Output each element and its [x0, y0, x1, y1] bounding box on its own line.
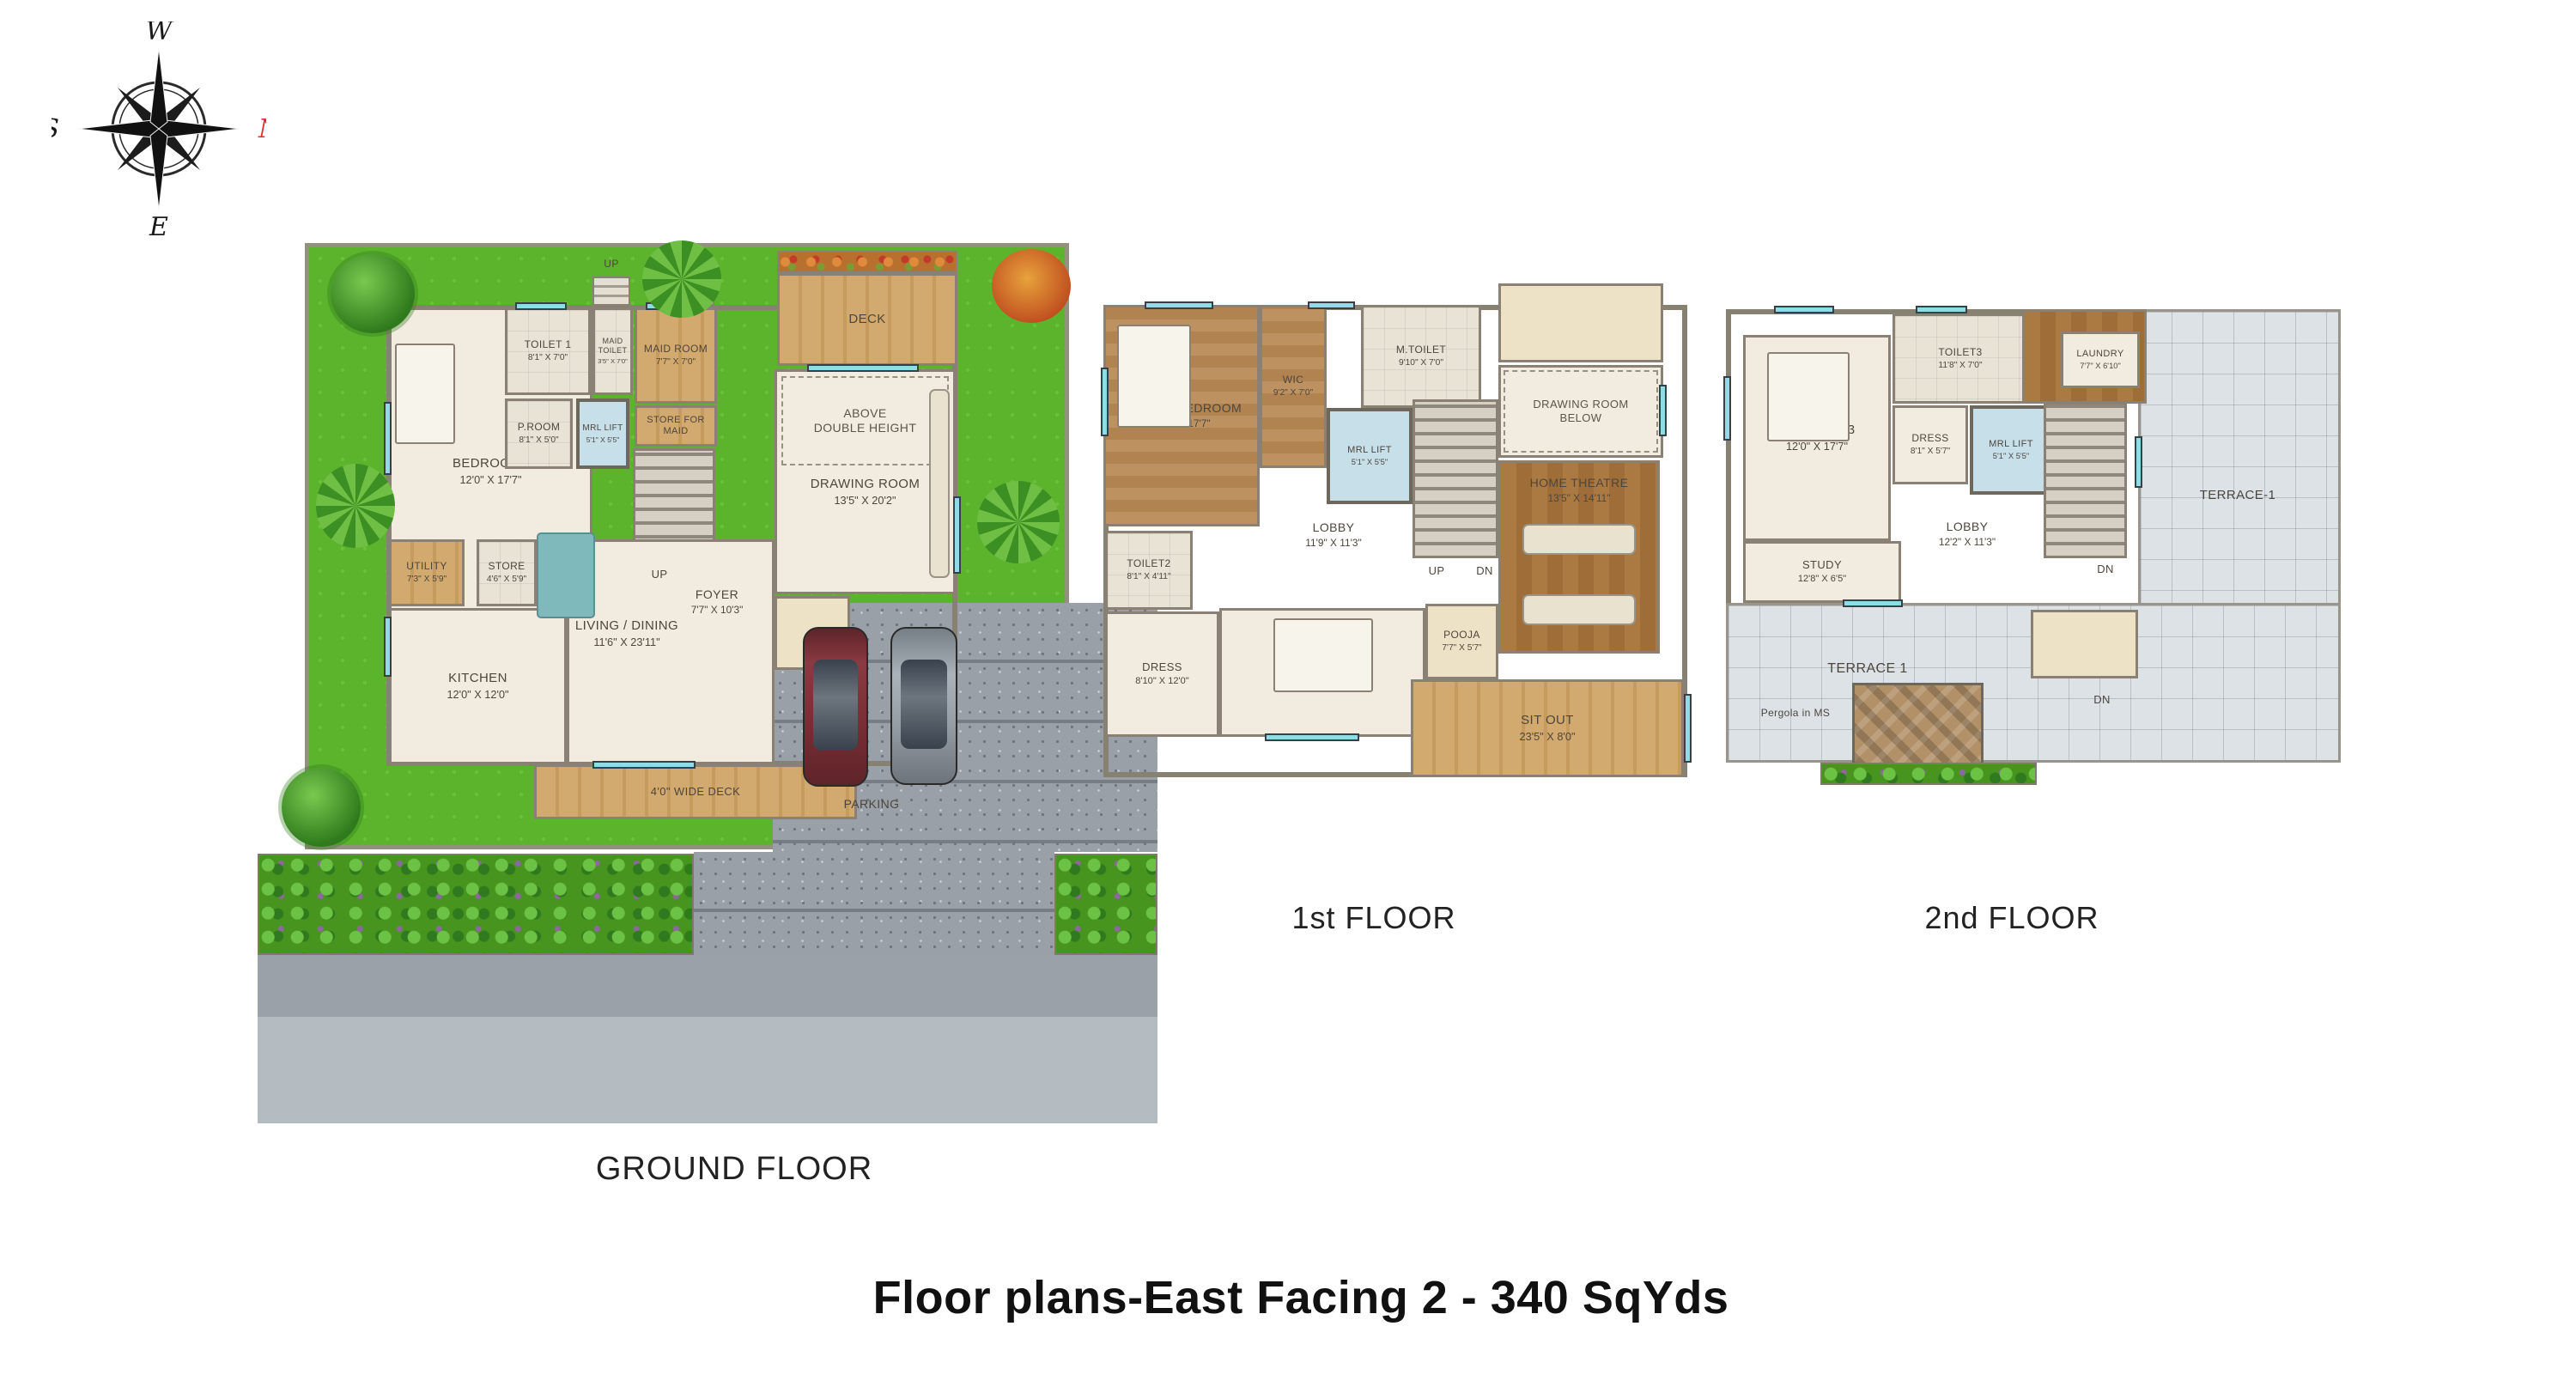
- mrl-lift-dimension: 5'1" X 5'5": [1993, 452, 2029, 461]
- window: [1265, 733, 1359, 741]
- above-double-height: ABOVE DOUBLE HEIGHT: [781, 376, 949, 465]
- wic-dimension: 9'2" X 7'0": [1273, 388, 1313, 398]
- store-for-maid: STORE FOR MAID: [635, 405, 717, 447]
- stairs-dn-label-label: DN: [1476, 564, 1493, 578]
- theatre-sofa: [1522, 594, 1636, 625]
- palm-tree: [977, 481, 1060, 563]
- toilet2-label: TOILET2: [1127, 557, 1170, 570]
- sit-out: SIT OUT23'5" X 8'0": [1411, 679, 1684, 777]
- window: [2135, 436, 2142, 488]
- first-floor-caption: 1st FLOOR: [1245, 900, 1503, 936]
- sheet-title: Floor plans-East Facing 2 - 340 SqYds: [773, 1271, 1829, 1324]
- landing: [2031, 610, 2138, 678]
- lobby-label: LOBBY12'2" X 11'3": [1907, 514, 2027, 555]
- maid-toilet-label: MAID TOILET: [595, 337, 630, 356]
- mrl-lift-label: MRL LIFT: [1989, 439, 2033, 450]
- home-theatre-label-label: HOME THEATRE: [1530, 476, 1629, 490]
- mrl-lift-label: MRL LIFT: [582, 423, 623, 434]
- maid-room-dimension: 7'7" X 7'0": [656, 357, 696, 368]
- balcony-seating: [1498, 283, 1663, 362]
- p-room-dimension: 8'1" X 5'0": [519, 435, 558, 446]
- deck-planter: [777, 251, 957, 273]
- road: [258, 955, 1157, 1123]
- m-toilet-label: M.TOILET: [1396, 344, 1446, 356]
- dress: DRESS8'10" X 12'0": [1105, 611, 1219, 737]
- toilet3: TOILET311'8" X 7'0": [1893, 313, 2028, 404]
- drawing-room-below-label-label: DRAWING ROOM BELOW: [1533, 398, 1628, 425]
- terrace1-label: TERRACE 1: [1803, 660, 1932, 678]
- window: [1308, 301, 1355, 309]
- palm-tree: [642, 240, 721, 318]
- tree: [331, 254, 415, 333]
- dress: DRESS8'1" X 5'7": [1893, 405, 1968, 484]
- stairs-dn-label-label: DN: [2097, 563, 2114, 576]
- kitchen: KITCHEN12'0" X 12'0": [389, 608, 567, 764]
- toilet2: TOILET28'1" X 4'11": [1105, 531, 1193, 610]
- hedge-right: [1054, 854, 1157, 955]
- laundry-dimension: 7'7" X 6'10": [2080, 362, 2121, 371]
- toilet3-dimension: 11'8" X 7'0": [1938, 361, 1982, 371]
- toilet1-dimension: 8'1" X 7'0": [528, 353, 568, 363]
- pergola: [1852, 683, 1984, 765]
- window: [1723, 376, 1731, 441]
- toilet1: TOILET 18'1" X 7'0": [505, 307, 591, 395]
- p-room: P.ROOM8'1" X 5'0": [505, 398, 573, 469]
- foyer-label-dimension: 7'7" X 10'3": [691, 604, 744, 617]
- drawing-room-label-dimension: 13'5" X 20'2": [834, 494, 896, 508]
- side-steps-1-label: UP: [594, 256, 629, 271]
- study-label: STUDY: [1802, 558, 1842, 572]
- second-floor-plan: BEDROOM312'0" X 17'7"TOILET311'8" X 7'0"…: [1722, 282, 2358, 797]
- compass-south-label: S: [52, 114, 59, 144]
- bedroom1-dimension: 12'0" X 17'7": [459, 473, 521, 487]
- store-for-maid-label: STORE FOR MAID: [637, 415, 714, 438]
- toilet1-label: TOILET 1: [525, 338, 572, 351]
- window: [592, 761, 696, 769]
- car-red: [803, 627, 868, 787]
- living-dining-label-dimension: 11'6" X 23'11": [593, 636, 659, 649]
- window: [384, 617, 392, 677]
- bedroom3-dimension: 12'0" X 17'7": [1786, 440, 1848, 453]
- stairs-up-label: UP: [642, 567, 677, 582]
- parking-label-label: PARKING: [844, 797, 900, 812]
- second-floor-caption: 2nd FLOOR: [1883, 900, 2141, 936]
- bedroom2-bed: [1273, 618, 1373, 692]
- home-theatre-label: HOME THEATRE13'5" X 14'11": [1505, 471, 1653, 510]
- mrl-lift-dimension: 5'1" X 5'5": [586, 435, 620, 444]
- toilet3-label: TOILET3: [1938, 346, 1982, 359]
- foyer-label-label: FOYER: [696, 587, 738, 602]
- mrl-lift: MRL LIFT5'1" X 5'5": [576, 398, 629, 469]
- window: [953, 496, 961, 574]
- pooja-dimension: 7'7" X 5'7": [1442, 643, 1481, 654]
- terrace-1-label-label: TERRACE-1: [2200, 488, 2276, 503]
- window: [1684, 694, 1692, 763]
- bedroom3-bed: [1767, 352, 1850, 441]
- terrace-dn-label: DN: [2087, 692, 2117, 708]
- sit-out-label: SIT OUT: [1521, 713, 1574, 728]
- store-dimension: 4'6" X 5'9": [487, 575, 526, 585]
- mrl-lift: MRL LIFT5'1" X 5'5": [1970, 405, 2052, 495]
- bedroom1-bed: [395, 344, 455, 444]
- stairs-up-label-label: UP: [652, 568, 668, 581]
- terrace-dn-label-label: DN: [2093, 693, 2111, 707]
- wic-label: WIC: [1283, 374, 1304, 386]
- stairs-dn-label: DN: [1469, 563, 1500, 579]
- mrl-lift: MRL LIFT5'1" X 5'5": [1327, 408, 1413, 504]
- window: [1659, 385, 1667, 436]
- maid-room-label: MAID ROOM: [644, 343, 708, 356]
- ground-floor-caption: GROUND FLOOR: [562, 1151, 906, 1188]
- sit-out-dimension: 23'5" X 8'0": [1520, 730, 1576, 744]
- terrace-1-label: TERRACE-1: [2169, 486, 2306, 505]
- driveway-entry: [694, 852, 1054, 957]
- window: [1916, 306, 1967, 313]
- lobby-label-label: LOBBY: [1947, 520, 1989, 534]
- side-steps-1: [592, 277, 630, 306]
- pergola-label: Pergola in MS: [1748, 704, 1843, 721]
- pergola-label-label: Pergola in MS: [1761, 707, 1831, 720]
- stairs-up-label-label: UP: [1429, 564, 1445, 578]
- car-grey: [890, 627, 957, 785]
- pooja-label: POOJA: [1443, 629, 1480, 642]
- above-double-height-label: ABOVE DOUBLE HEIGHT: [814, 406, 917, 435]
- study: STUDY12'8" X 6'5": [1743, 541, 1901, 603]
- maid-toilet-dimension: 3'5" X 7'0": [598, 357, 628, 365]
- window: [1843, 599, 1903, 607]
- window: [1774, 306, 1834, 313]
- lobby-label-label: LOBBY: [1313, 520, 1355, 535]
- flowering-shrub: [992, 249, 1071, 323]
- first-floor-plan: MASTER BEDROOM12'0" X 17'7"WIC9'2" X 7'0…: [1093, 273, 1728, 849]
- master-bed: [1117, 325, 1191, 428]
- maid-toilet: MAID TOILET3'5" X 7'0": [592, 307, 633, 395]
- store: STORE4'6" X 5'9": [477, 539, 537, 606]
- wic: WIC9'2" X 7'0": [1260, 305, 1327, 468]
- dining-table: [537, 532, 595, 618]
- window: [807, 364, 919, 372]
- m-toilet-dimension: 9'10" X 7'0": [1399, 358, 1443, 368]
- theatre-sofa: [1522, 524, 1636, 555]
- mrl-lift-label: MRL LIFT: [1347, 445, 1392, 456]
- side-steps-1-label-label: UP: [604, 258, 618, 271]
- drawing-room-label-label: DRAWING ROOM: [811, 477, 920, 492]
- lobby-label-dimension: 12'2" X 11'3": [1939, 536, 1996, 549]
- m-toilet: M.TOILET9'10" X 7'0": [1361, 305, 1481, 408]
- store-label: STORE: [488, 560, 525, 573]
- toilet2-dimension: 8'1" X 4'11": [1127, 572, 1170, 582]
- dress-dimension: 8'10" X 12'0": [1135, 676, 1188, 687]
- study-dimension: 12'8" X 6'5": [1798, 574, 1846, 585]
- foyer-label: FOYER7'7" X 10'3": [661, 578, 773, 626]
- lobby-label-dimension: 11'9" X 11'3": [1305, 537, 1361, 550]
- window: [1101, 368, 1109, 436]
- dress-dimension: 8'1" X 5'7": [1911, 447, 1950, 457]
- compass-rose: W N E S: [52, 21, 266, 236]
- dress-label: DRESS: [1911, 432, 1948, 445]
- utility-dimension: 7'3" X 5'9": [407, 575, 447, 585]
- utility: UTILITY7'3" X 5'9": [389, 539, 465, 606]
- palm-tree: [316, 464, 395, 548]
- p-room-label: P.ROOM: [518, 421, 561, 434]
- maid-room: MAID ROOM7'7" X 7'0": [635, 307, 717, 404]
- deck-label: DECK: [848, 312, 885, 327]
- ground-floor-plan: DECKBEDROOM112'0" X 17'7"TOILET 18'1" X …: [258, 239, 1159, 1132]
- mrl-lift-dimension: 5'1" X 5'5": [1352, 458, 1388, 467]
- kitchen-dimension: 12'0" X 12'0": [447, 688, 508, 702]
- drawing-sofa: [929, 389, 950, 578]
- laundry: LAUNDRY7'7" X 6'10": [2061, 332, 2140, 388]
- lobby-label: LOBBY11'9" X 11'3": [1273, 514, 1394, 557]
- home-theatre-label-dimension: 13'5" X 14'11": [1548, 492, 1611, 505]
- compass-north-label: N: [258, 114, 266, 144]
- pooja: POOJA7'7" X 5'7": [1425, 604, 1498, 679]
- deck: DECK: [777, 273, 957, 366]
- window: [515, 302, 567, 310]
- terrace1-label-label: TERRACE 1: [1827, 660, 1907, 678]
- stairs-up-label: UP: [1421, 563, 1452, 579]
- drawing-room-below-label: DRAWING ROOM BELOW: [1504, 370, 1658, 453]
- dress-label: DRESS: [1142, 660, 1182, 674]
- tree: [282, 768, 361, 847]
- staircase: [2044, 402, 2127, 558]
- hedge-strip: [1820, 763, 2037, 785]
- window: [1145, 301, 1213, 309]
- stairs-dn-label: DN: [2090, 562, 2121, 577]
- staircase: [1413, 399, 1498, 558]
- hedge-left: [258, 854, 694, 955]
- compass-east-label: E: [149, 212, 168, 236]
- utility-label: UTILITY: [406, 560, 447, 573]
- compass-west-label: W: [146, 21, 174, 46]
- floor-plan-sheet: W N E S DECKBEDROOM112'0" X 17'7"TOILET …: [0, 0, 2576, 1393]
- window: [384, 402, 392, 475]
- kitchen-label: KITCHEN: [448, 671, 507, 686]
- wide-deck-label: 4'0" WIDE DECK: [651, 785, 740, 799]
- laundry-label: LAUNDRY: [2076, 349, 2123, 360]
- drawing-room-label: DRAWING ROOM13'5" X 20'2": [790, 471, 940, 514]
- parking-label: PARKING: [824, 795, 919, 814]
